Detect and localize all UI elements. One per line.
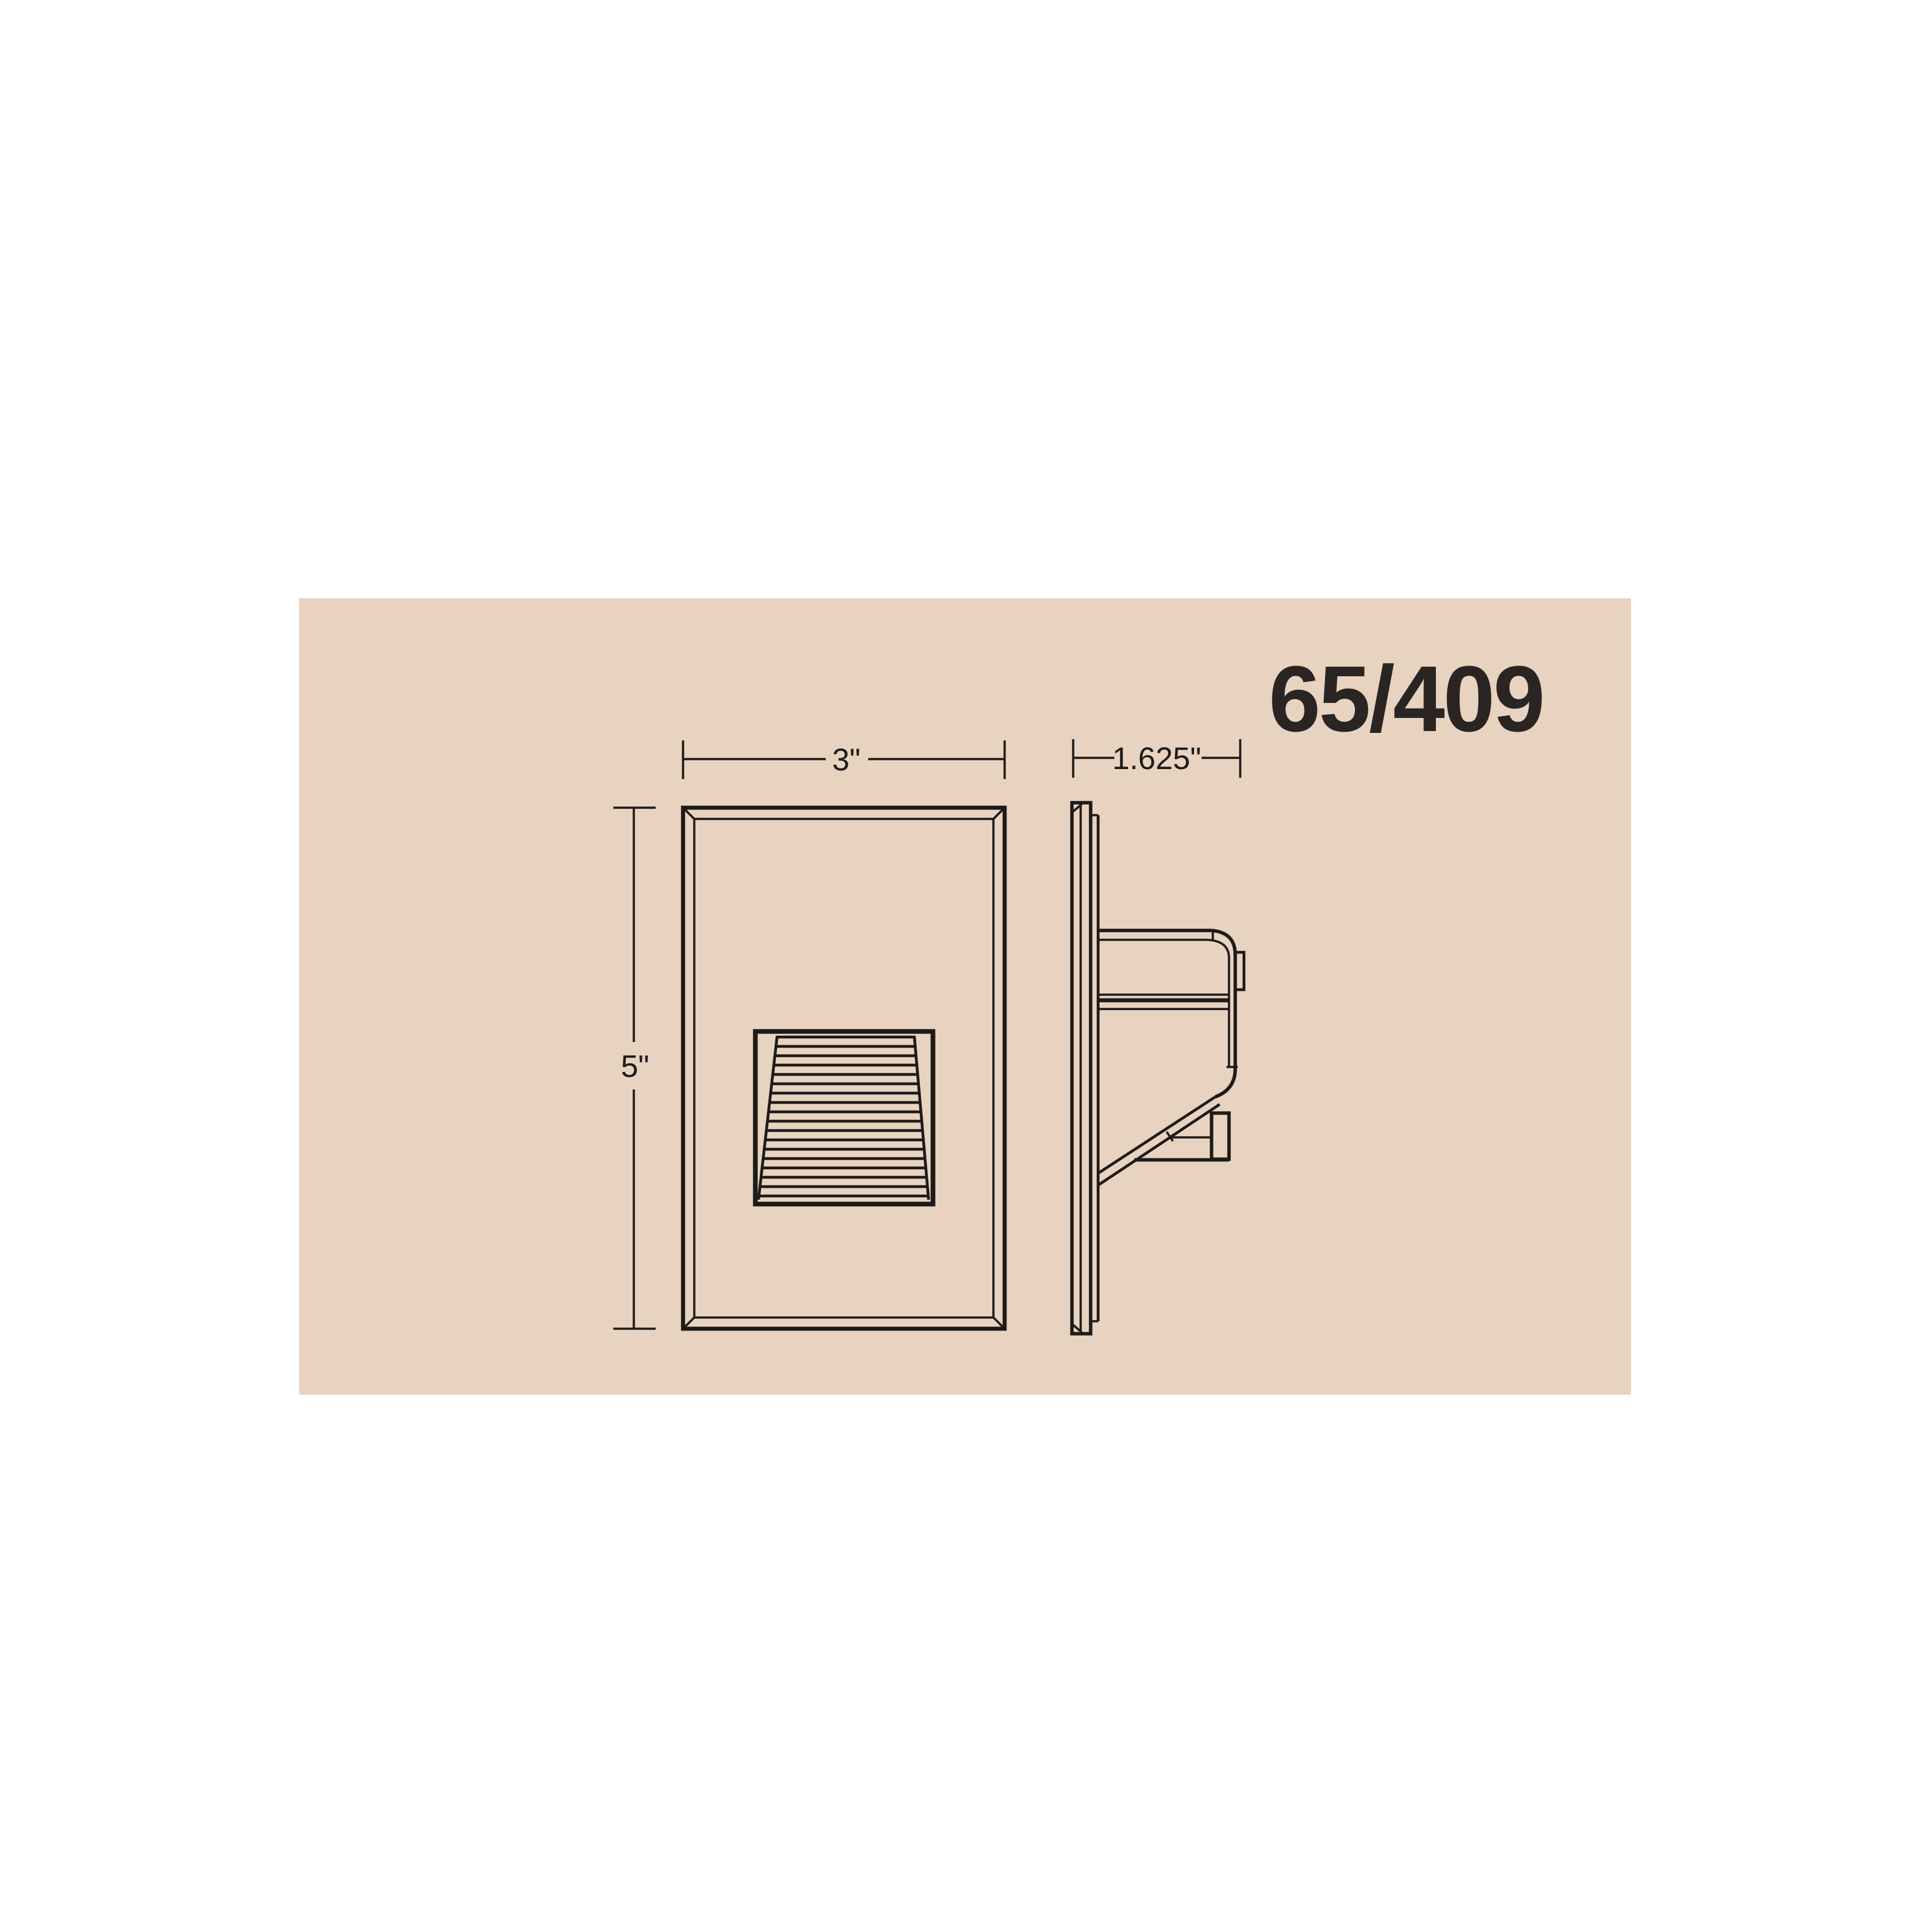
spec-diagram: 3" 5" 1.625" 65/409 — [0, 0, 1932, 1932]
depth-dimension-label: 1.625" — [1112, 741, 1202, 776]
product-code: 65/409 — [1269, 646, 1544, 751]
page: 3" 5" 1.625" 65/409 — [0, 0, 1932, 1932]
width-dimension-label: 3" — [832, 742, 861, 777]
height-dimension-label: 5" — [621, 1049, 649, 1084]
